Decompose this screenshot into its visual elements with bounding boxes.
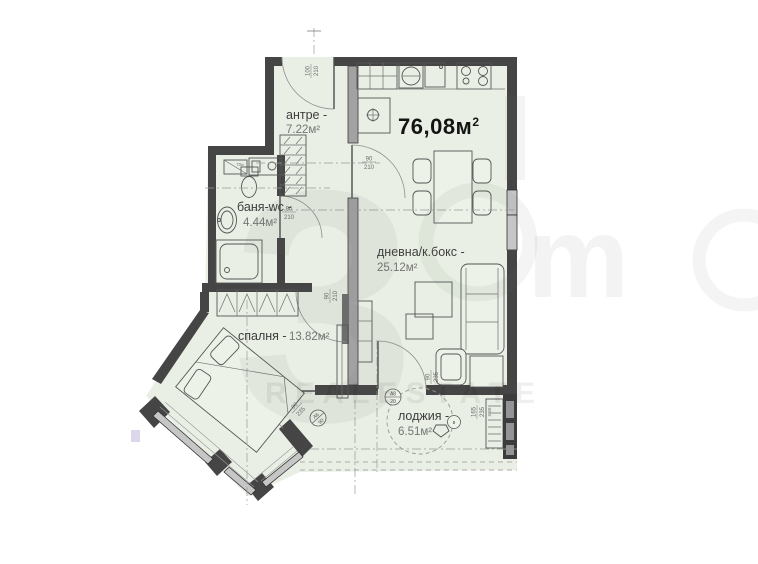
watermark-glyph-m: m xyxy=(527,194,629,322)
stair-landing xyxy=(131,430,140,442)
symbol-v: в xyxy=(448,416,461,429)
chair xyxy=(413,159,431,183)
antre-label: антре - xyxy=(286,108,327,122)
floor-plan-page: антре - 7.22м² баня-wc - 4.44м² спалня -… xyxy=(0,0,758,564)
watermark-band: R E A L E S T A T E xyxy=(265,377,535,410)
svg-text:в: в xyxy=(453,420,456,426)
svg-text:100: 100 xyxy=(306,65,312,76)
svg-text:210: 210 xyxy=(314,65,320,76)
floor-plan-svg: антре - 7.22м² баня-wc - 4.44м² спалня -… xyxy=(0,0,758,564)
watermark-bar xyxy=(505,96,525,180)
sofa xyxy=(461,264,504,354)
chair xyxy=(473,159,491,183)
watermark-ring-right xyxy=(699,215,758,305)
watermark-glyph: 3 xyxy=(232,121,416,490)
